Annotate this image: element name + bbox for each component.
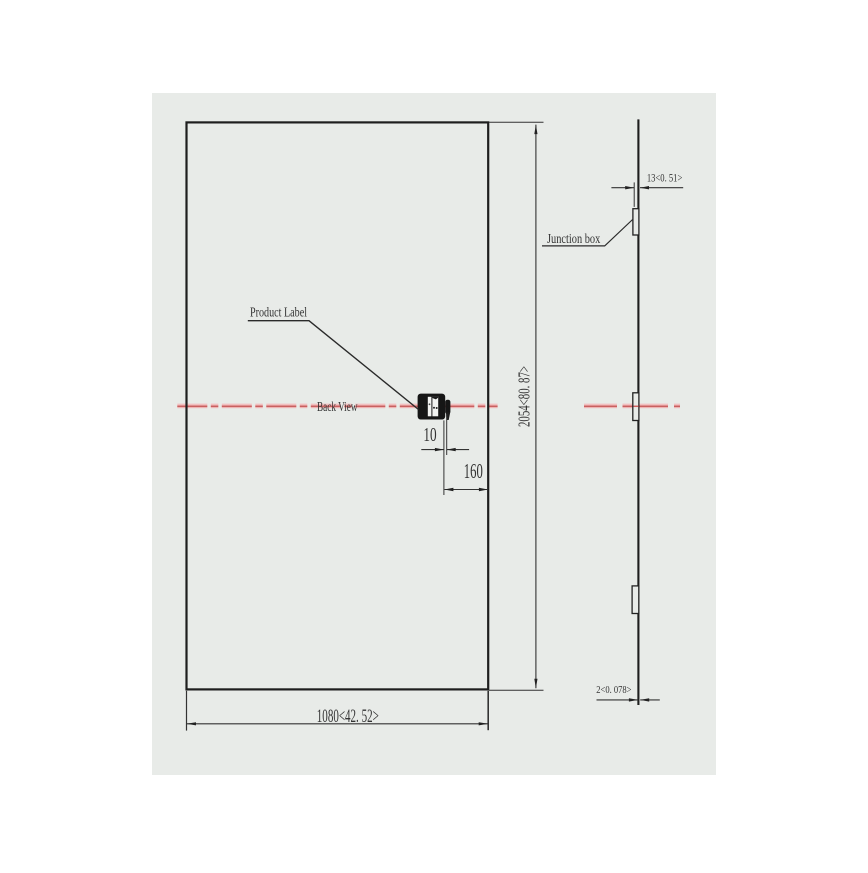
svg-text:Back View: Back View [317, 399, 358, 414]
svg-text:2<0. 078>: 2<0. 078> [596, 684, 631, 696]
svg-text:2054<80. 87>: 2054<80. 87> [514, 366, 533, 427]
svg-text:10: 10 [423, 424, 436, 446]
svg-text:13<0. 51>: 13<0. 51> [647, 171, 683, 185]
svg-text:160: 160 [464, 459, 483, 483]
svg-text:1080<42. 52>: 1080<42. 52> [317, 706, 379, 727]
svg-text:Product Label: Product Label [250, 306, 307, 321]
svg-text:Junction box: Junction box [547, 232, 600, 247]
